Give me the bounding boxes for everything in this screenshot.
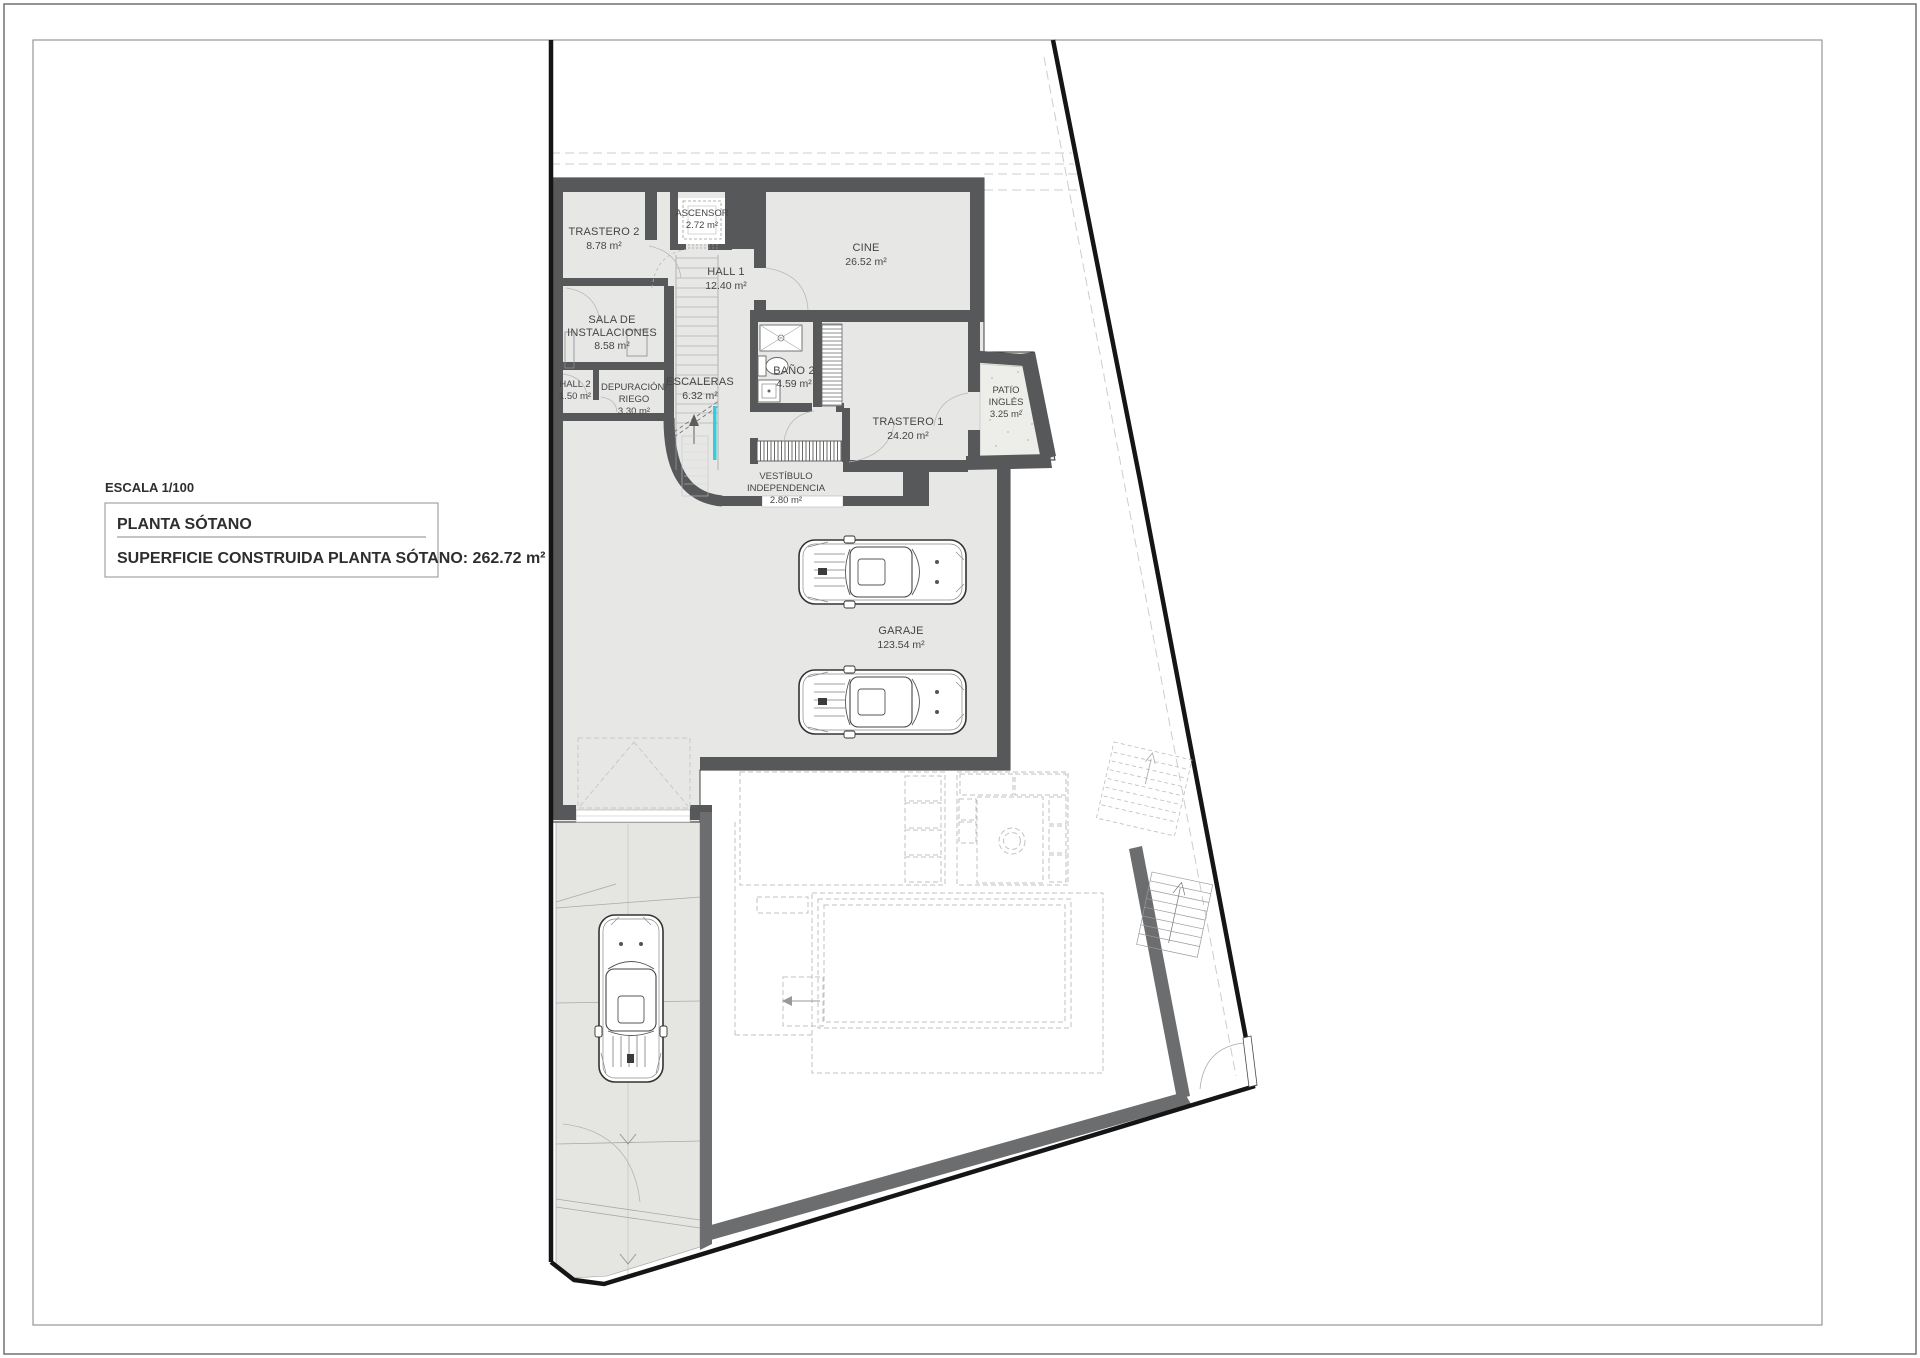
room-label-vestibulo-name2: INDEPENDENCIA: [747, 483, 826, 494]
room-label-patio-name1: PATIO: [992, 385, 1019, 396]
pool-outline: [757, 893, 1103, 1073]
plan-title: PLANTA SÓTANO: [117, 514, 252, 533]
room-label-cine-name: CINE: [852, 242, 879, 254]
room-label-sala-name1: SALA DE: [588, 314, 635, 326]
room-label-hall1-name: HALL 1: [707, 266, 744, 278]
room-label-patio-name2: INGLÉS: [989, 397, 1024, 408]
room-label-hall2-name: HALL 2: [559, 379, 590, 390]
exterior-door: [1200, 1036, 1257, 1089]
room-label-bano2-name: BAÑO 2: [773, 364, 815, 377]
room-label-trastero1-name: TRASTERO 1: [872, 416, 943, 428]
car-top-view-icon: [799, 536, 966, 608]
room-label-escaleras-area: 6.32 m²: [682, 390, 718, 402]
room-label-depuracion-name2: RIEGO: [619, 394, 650, 405]
room-label-sala-name2: INSTALACIONES: [567, 327, 657, 339]
room-label-trastero2-name: TRASTERO 2: [568, 226, 639, 238]
room-label-hall2-area: 1.50 m²: [559, 391, 591, 402]
room-label-ascensor-name: ASCENSOR: [675, 208, 728, 219]
car-top-view-icon: [799, 666, 966, 738]
pool-stair-arrow: [782, 996, 820, 1006]
room-label-ascensor-area: 2.72 m²: [686, 220, 718, 231]
vestibulo-grating-icon: [757, 441, 842, 461]
outdoor-kitchen-outline: [957, 772, 1068, 885]
room-label-vestibulo-name1: VESTÍBULO: [759, 471, 812, 482]
room-label-escaleras-name: ESCALERAS: [666, 376, 734, 388]
room-label-garaje-area: 123.54 m²: [877, 639, 925, 651]
room-label-trastero2-area: 8.78 m²: [586, 240, 622, 252]
room-label-sala-area: 8.58 m²: [594, 340, 630, 352]
room-label-cine-area: 26.52 m²: [845, 256, 887, 268]
terrace-outline: [740, 772, 945, 885]
floor-plan-canvas: TRASTERO 2 8.78 m² ASCENSOR 2.72 m² HALL…: [0, 0, 1920, 1358]
drawing-sheet: TRASTERO 2 8.78 m² ASCENSOR 2.72 m² HALL…: [0, 0, 1920, 1358]
title-block: ESCALA 1/100 PLANTA SÓTANO SUPERFICIE CO…: [105, 480, 546, 577]
room-label-vestibulo-area: 2.80 m²: [770, 495, 802, 506]
room-label-depuracion-name1: DEPURACIÓN/: [601, 382, 667, 393]
car-top-view-icon: [595, 915, 667, 1082]
garden-walls: [700, 812, 1191, 1250]
shower-icon: [760, 325, 802, 351]
room-label-trastero1-area: 24.20 m²: [887, 430, 929, 442]
room-label-garaje-name: GARAJE: [878, 625, 923, 637]
exterior-staircase-upper: [1096, 742, 1191, 836]
garden-dashed-outlines: [735, 772, 1103, 1073]
built-area-label: SUPERFICIE CONSTRUIDA PLANTA SÓTANO: 262…: [117, 548, 546, 567]
scale-label: ESCALA 1/100: [105, 480, 194, 495]
room-label-depuracion-area: 3.30 m²: [618, 406, 650, 417]
closet-shelving-icon: [822, 324, 842, 406]
room-label-patio-area: 3.25 m²: [990, 409, 1022, 420]
room-label-bano2-area: 4.59 m²: [776, 378, 812, 390]
section-line: [713, 406, 717, 460]
room-label-hall1-area: 12.40 m²: [705, 280, 747, 292]
